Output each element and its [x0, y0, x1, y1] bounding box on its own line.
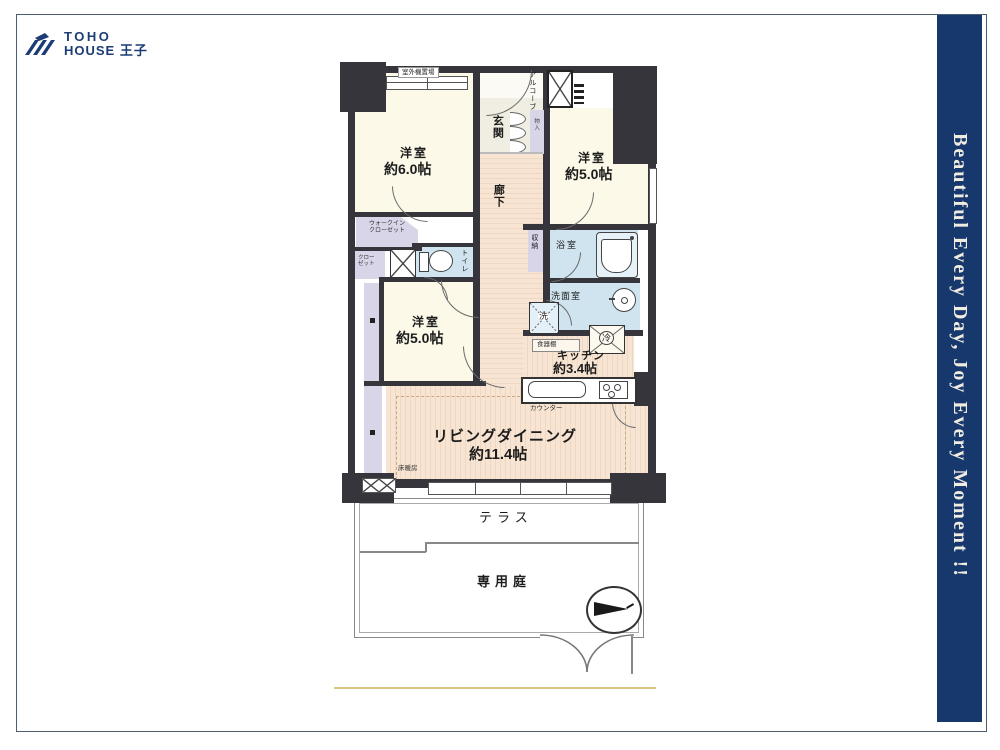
wall-left — [348, 66, 355, 486]
window-bedroom5a-right — [649, 168, 657, 224]
logo-line2: HOUSE 王子 — [64, 44, 148, 59]
wall-bath-left — [545, 228, 550, 282]
side-strip-dot-2 — [370, 430, 375, 435]
wall-toilet-top — [412, 243, 480, 247]
shoe-box-label: 物入 — [533, 118, 539, 131]
wic-label: ウォークイン クローゼット — [358, 221, 416, 234]
terrace-label: テラス — [479, 511, 533, 526]
window-vent-x — [362, 478, 396, 493]
pillar-top-left — [340, 62, 386, 112]
entrance-step-line — [480, 152, 543, 154]
washroom-label: 洗面室 — [551, 291, 581, 301]
outdoor-unit-label: 室外機置場 — [398, 67, 439, 78]
terrace-divider-c — [425, 542, 639, 544]
flyer-page: TOHO HOUSE 王子 Beautiful Every Day, Joy E… — [0, 0, 1000, 750]
bedroom5a-name: 洋室 — [578, 152, 606, 165]
bedroom6-name: 洋室 — [400, 147, 428, 160]
side-banner-text: Beautiful Every Day, Joy Every Moment !! — [948, 133, 971, 750]
shaft-x-icon — [390, 249, 416, 278]
pillar-bottom-right — [610, 473, 666, 503]
floor-heating-label: 床暖房 — [398, 465, 418, 472]
garden-label: 専用庭 — [477, 575, 531, 590]
wall-bedroom5b-bottom — [364, 381, 486, 386]
alcove-label: アルコーブ — [528, 71, 536, 111]
toilet-icon — [419, 250, 453, 272]
bathtub-icon — [596, 232, 638, 278]
toho-logo-icon — [24, 30, 62, 63]
cupboard-label: 食器棚 — [537, 341, 557, 348]
counter-label: カウンター — [530, 405, 563, 412]
wall-hall-left — [473, 66, 480, 384]
kitchen-size: 約3.4帖 — [553, 362, 597, 377]
storage-label: 収納 — [530, 234, 538, 250]
fridge-label: 冷 — [599, 331, 614, 345]
washer-label: 洗 — [538, 311, 549, 321]
wall-bedroom5a-bottom — [523, 224, 656, 230]
wall-bedroom5b-left — [379, 277, 384, 383]
living-name: リビングダイニング — [433, 429, 577, 446]
shoe-box-strip — [530, 110, 544, 154]
meter-box-icon — [574, 84, 584, 104]
living-size: 約11.4帖 — [469, 447, 527, 464]
stove-icon — [599, 381, 628, 399]
bedroom5b-size: 約5.0帖 — [396, 331, 443, 347]
bedroom5b-name: 洋室 — [412, 316, 440, 329]
side-strip-dot-1 — [370, 318, 375, 323]
terrace-divider-a — [360, 551, 426, 553]
kitchen-sink-icon — [528, 381, 586, 398]
gate-door-arcs — [536, 633, 638, 680]
terrace-divider-b — [425, 542, 427, 552]
sink-icon — [612, 288, 636, 312]
bedroom6-size: 約6.0帖 — [384, 162, 431, 178]
property-line — [334, 687, 656, 689]
shoe-box-door-arcs — [510, 112, 528, 154]
compass-icon — [586, 586, 642, 634]
entrance-label: 玄関 — [491, 115, 503, 139]
kitchen-counter — [521, 377, 637, 404]
hallway-label: 廊下 — [492, 184, 504, 208]
bedroom5a-size: 約5.0帖 — [565, 167, 612, 183]
bath-label: 浴室 — [556, 240, 578, 250]
elevator-shaft-icon — [547, 70, 573, 108]
toilet-label: トイレ — [460, 249, 468, 273]
closet-label: クロー ゼット — [358, 255, 375, 267]
side-banner: Beautiful Every Day, Joy Every Moment !! — [937, 15, 982, 722]
pillar-top-right — [613, 66, 657, 164]
window-ld-sliding — [428, 482, 612, 495]
